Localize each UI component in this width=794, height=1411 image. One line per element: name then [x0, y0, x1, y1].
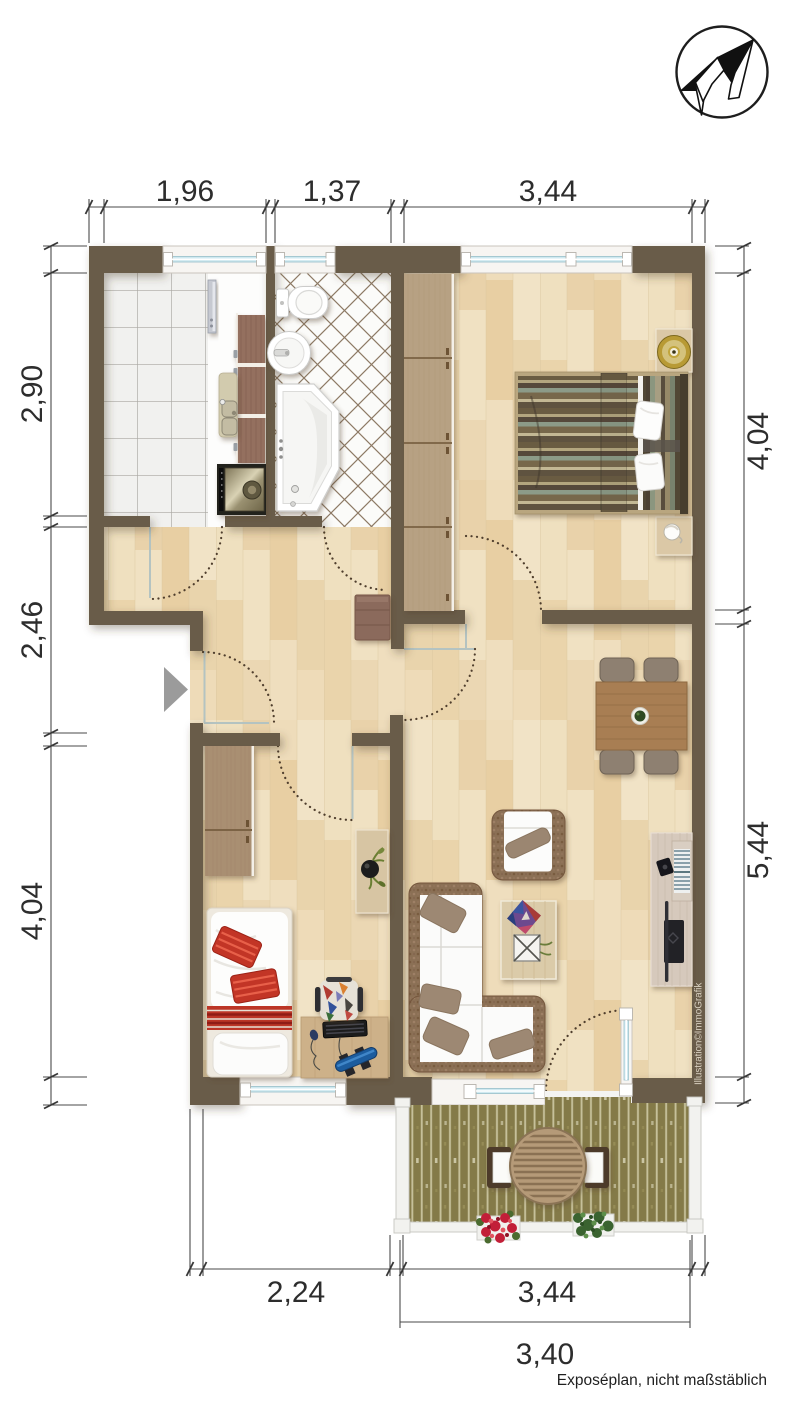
svg-text:Illustration©ImmoGrafik: Illustration©ImmoGrafik [694, 982, 705, 1085]
svg-text:1,37: 1,37 [303, 175, 361, 208]
svg-text:Exposéplan, nicht maßstäblich: Exposéplan, nicht maßstäblich [557, 1372, 767, 1389]
svg-text:4,04: 4,04 [742, 412, 775, 470]
svg-text:5,44: 5,44 [742, 821, 775, 879]
svg-text:1,96: 1,96 [156, 175, 214, 208]
svg-text:3,40: 3,40 [516, 1338, 574, 1371]
svg-text:4,04: 4,04 [16, 882, 49, 940]
svg-text:2,46: 2,46 [16, 601, 49, 659]
svg-text:2,24: 2,24 [267, 1276, 325, 1309]
svg-text:3,44: 3,44 [519, 175, 577, 208]
svg-text:2,90: 2,90 [16, 365, 49, 423]
svg-text:3,44: 3,44 [518, 1276, 576, 1309]
